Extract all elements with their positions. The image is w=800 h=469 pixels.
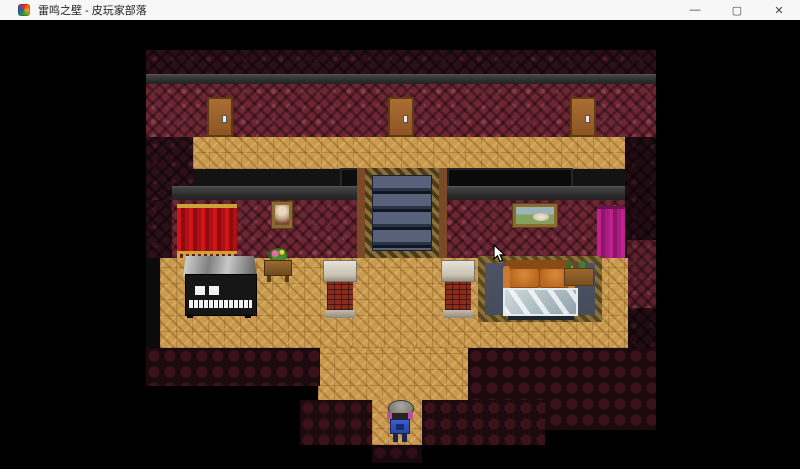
upper-corridor-floor[interactable] bbox=[193, 137, 625, 169]
piano-lid bbox=[183, 256, 257, 276]
character-belt bbox=[396, 424, 404, 430]
window-title: 雷鸣之壁 - 皮玩家部落 bbox=[38, 2, 147, 18]
character-legs bbox=[393, 434, 398, 442]
right-wall-patch bbox=[627, 240, 656, 308]
flower-table[interactable] bbox=[264, 248, 292, 284]
dark-floor-bottom-left bbox=[300, 400, 372, 445]
staircase[interactable] bbox=[357, 168, 447, 258]
game-app-icon bbox=[18, 4, 30, 16]
dark-floor-corridor-end bbox=[372, 445, 422, 463]
sofa-armrests bbox=[503, 266, 510, 290]
piano-legs bbox=[187, 314, 193, 318]
magenta-curtain bbox=[597, 206, 625, 258]
piano[interactable] bbox=[183, 256, 257, 318]
landscape-painting bbox=[512, 203, 558, 228]
brick-pillar-left bbox=[325, 260, 355, 318]
left-dim-wall-lower bbox=[146, 200, 172, 258]
mouse-cursor bbox=[493, 244, 507, 264]
door-left[interactable] bbox=[207, 97, 233, 137]
piano-sheet bbox=[195, 286, 205, 295]
door-middle[interactable] bbox=[388, 97, 414, 137]
upper-dim-wall bbox=[146, 50, 656, 74]
window-titlebar[interactable]: 雷鸣之壁 - 皮玩家部落 — ▢ ✕ bbox=[0, 0, 800, 21]
sofa-backrest bbox=[506, 260, 572, 269]
piano-keys bbox=[188, 300, 252, 308]
shelf-body bbox=[564, 268, 594, 286]
window-controls: — ▢ ✕ bbox=[674, 0, 800, 20]
bottle-shelf[interactable] bbox=[564, 258, 594, 288]
staircase-steps bbox=[372, 175, 432, 251]
table-legs bbox=[267, 276, 271, 282]
dark-floor-left bbox=[146, 348, 320, 386]
mid-floor[interactable] bbox=[318, 348, 468, 402]
app-window: 雷鸣之壁 - 皮玩家部落 — ▢ ✕ bbox=[0, 0, 800, 469]
left-dark-edge bbox=[146, 258, 160, 348]
glass-table-shadow bbox=[508, 316, 574, 320]
door-right[interactable] bbox=[570, 97, 596, 137]
maximize-button[interactable]: ▢ bbox=[716, 0, 758, 20]
close-button[interactable]: ✕ bbox=[758, 0, 800, 20]
piano-body bbox=[185, 274, 257, 316]
red-curtain bbox=[177, 204, 237, 254]
portrait-painting bbox=[271, 201, 293, 229]
dark-floor-bottom-right bbox=[422, 400, 545, 445]
brick-pillar-right bbox=[443, 260, 473, 318]
player-character[interactable] bbox=[386, 400, 414, 444]
glass-table[interactable] bbox=[503, 288, 578, 316]
game-canvas[interactable] bbox=[0, 20, 800, 469]
minimize-button[interactable]: — bbox=[674, 0, 716, 20]
table-top bbox=[264, 260, 292, 276]
